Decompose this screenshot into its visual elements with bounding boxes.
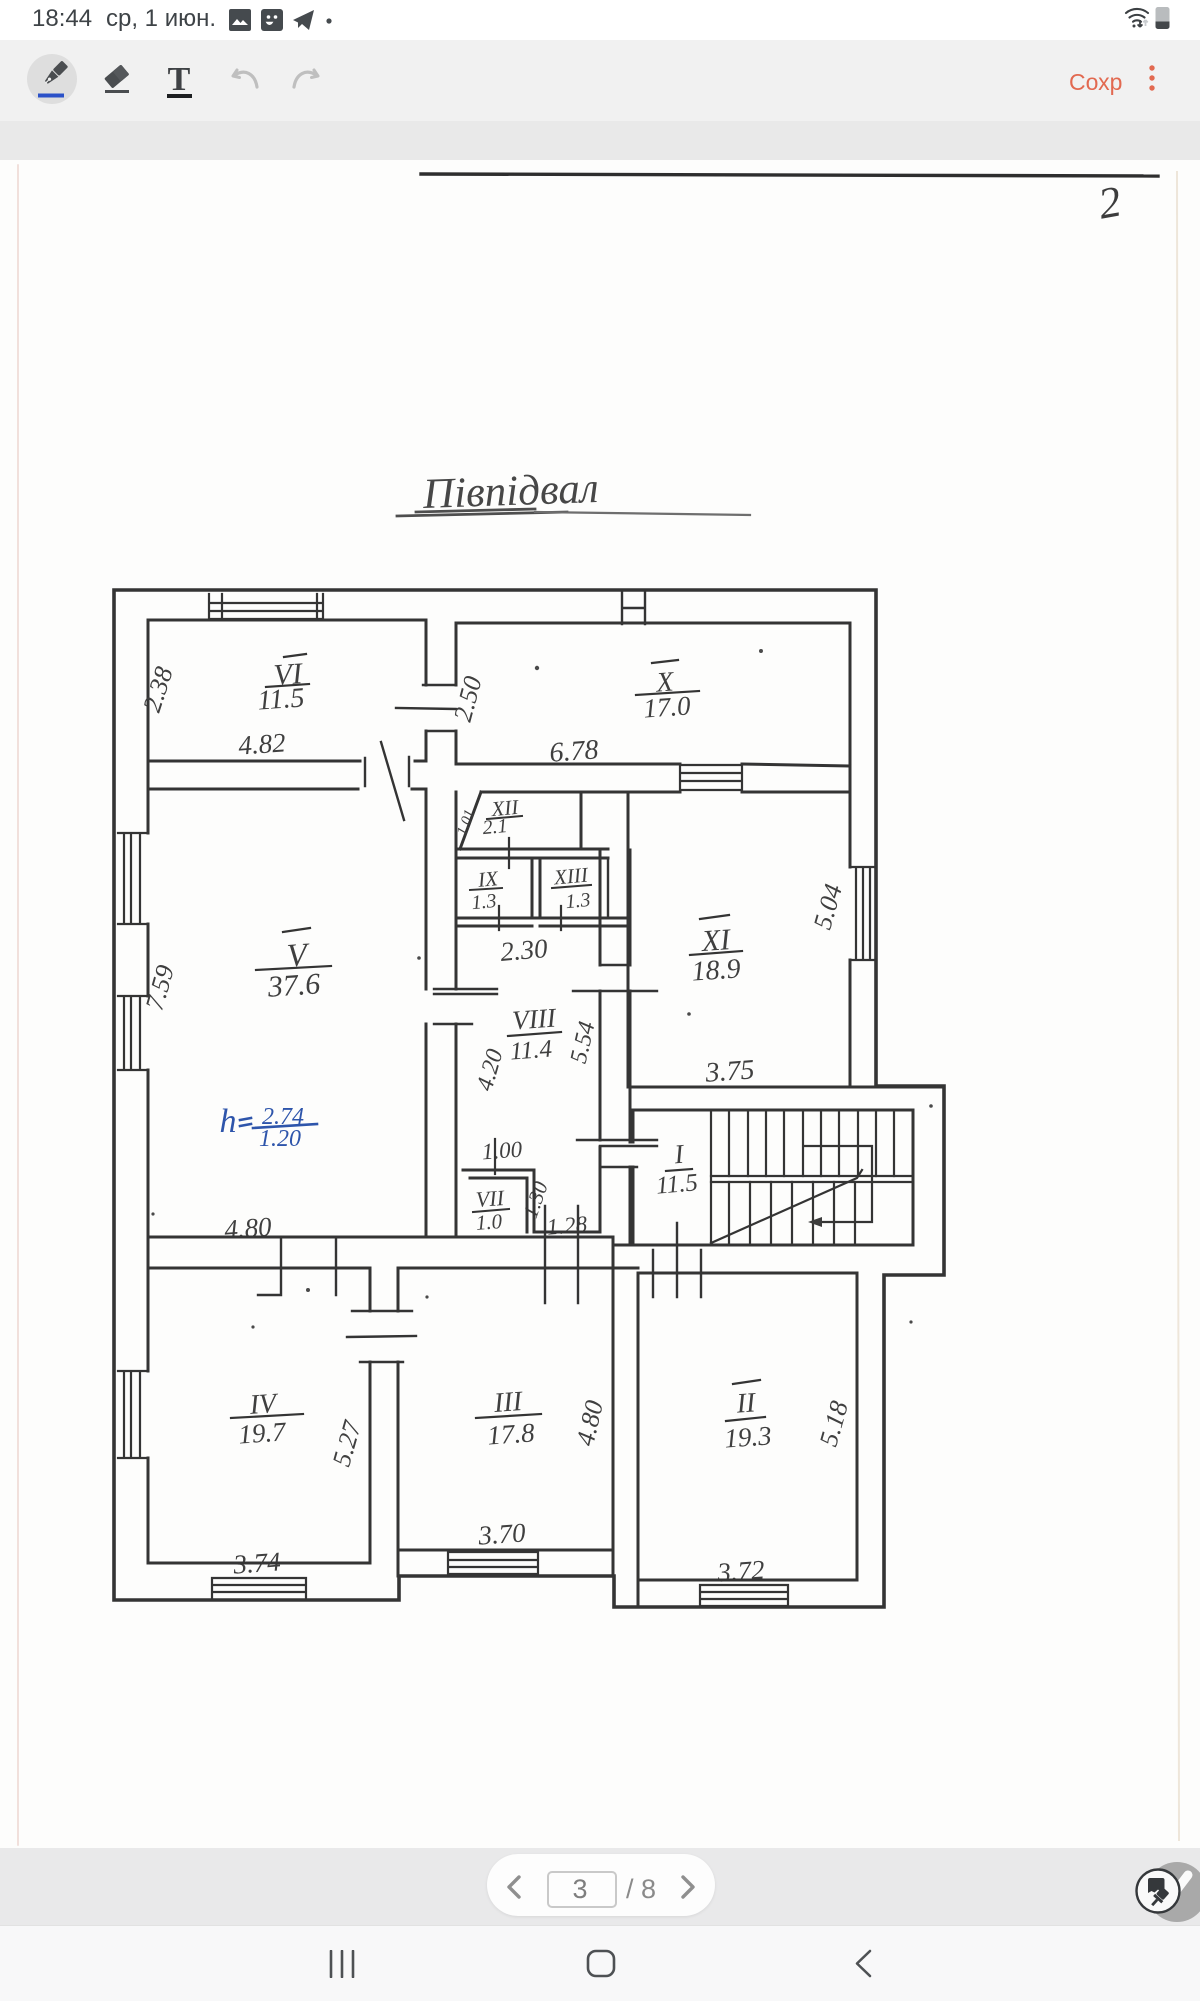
svg-text:4.20: 4.20 [472, 1046, 509, 1094]
svg-text:5.04: 5.04 [808, 881, 848, 933]
svg-text:19.7: 19.7 [237, 1416, 288, 1449]
svg-text:h: h [220, 1103, 237, 1140]
svg-text:5.54: 5.54 [566, 1019, 601, 1066]
svg-text:1.20: 1.20 [259, 1126, 301, 1152]
svg-text:37.6: 37.6 [266, 967, 322, 1004]
svg-text:7.59: 7.59 [140, 962, 180, 1014]
svg-text:II: II [735, 1387, 758, 1419]
svg-text:1.3: 1.3 [565, 889, 592, 913]
svg-text:I: I [672, 1138, 687, 1169]
svg-text:4.82: 4.82 [237, 727, 286, 760]
svg-text:2.38: 2.38 [137, 663, 179, 715]
svg-text:1.00: 1.00 [481, 1137, 523, 1165]
svg-text:1.3: 1.3 [471, 890, 498, 914]
svg-text:4.80: 4.80 [570, 1398, 608, 1449]
svg-text:17.0: 17.0 [642, 690, 692, 723]
svg-text:19.3: 19.3 [723, 1420, 772, 1453]
svg-text:3.75: 3.75 [703, 1054, 755, 1088]
svg-text:3.70: 3.70 [476, 1517, 527, 1550]
svg-text:2.30: 2.30 [499, 933, 549, 967]
svg-text:11.5: 11.5 [256, 682, 305, 716]
svg-text:17.8: 17.8 [486, 1417, 536, 1450]
svg-text:18.9: 18.9 [691, 953, 742, 987]
svg-text:5.18: 5.18 [814, 1398, 854, 1450]
svg-text:1.28: 1.28 [546, 1211, 589, 1239]
svg-text:11.4: 11.4 [509, 1036, 553, 1066]
svg-text:VIII: VIII [511, 1002, 558, 1035]
svg-text:2: 2 [1095, 176, 1125, 228]
svg-text:5.27: 5.27 [327, 1417, 368, 1470]
svg-text:1.01: 1.01 [454, 808, 478, 838]
svg-text:11.5: 11.5 [655, 1169, 699, 1200]
svg-text:VII: VII [475, 1185, 506, 1212]
svg-text:2.50: 2.50 [448, 673, 488, 724]
svg-text:1.0: 1.0 [475, 1209, 503, 1235]
svg-text:4.80: 4.80 [223, 1211, 273, 1244]
svg-text:3.72: 3.72 [715, 1554, 765, 1587]
svg-text:III: III [492, 1386, 525, 1419]
